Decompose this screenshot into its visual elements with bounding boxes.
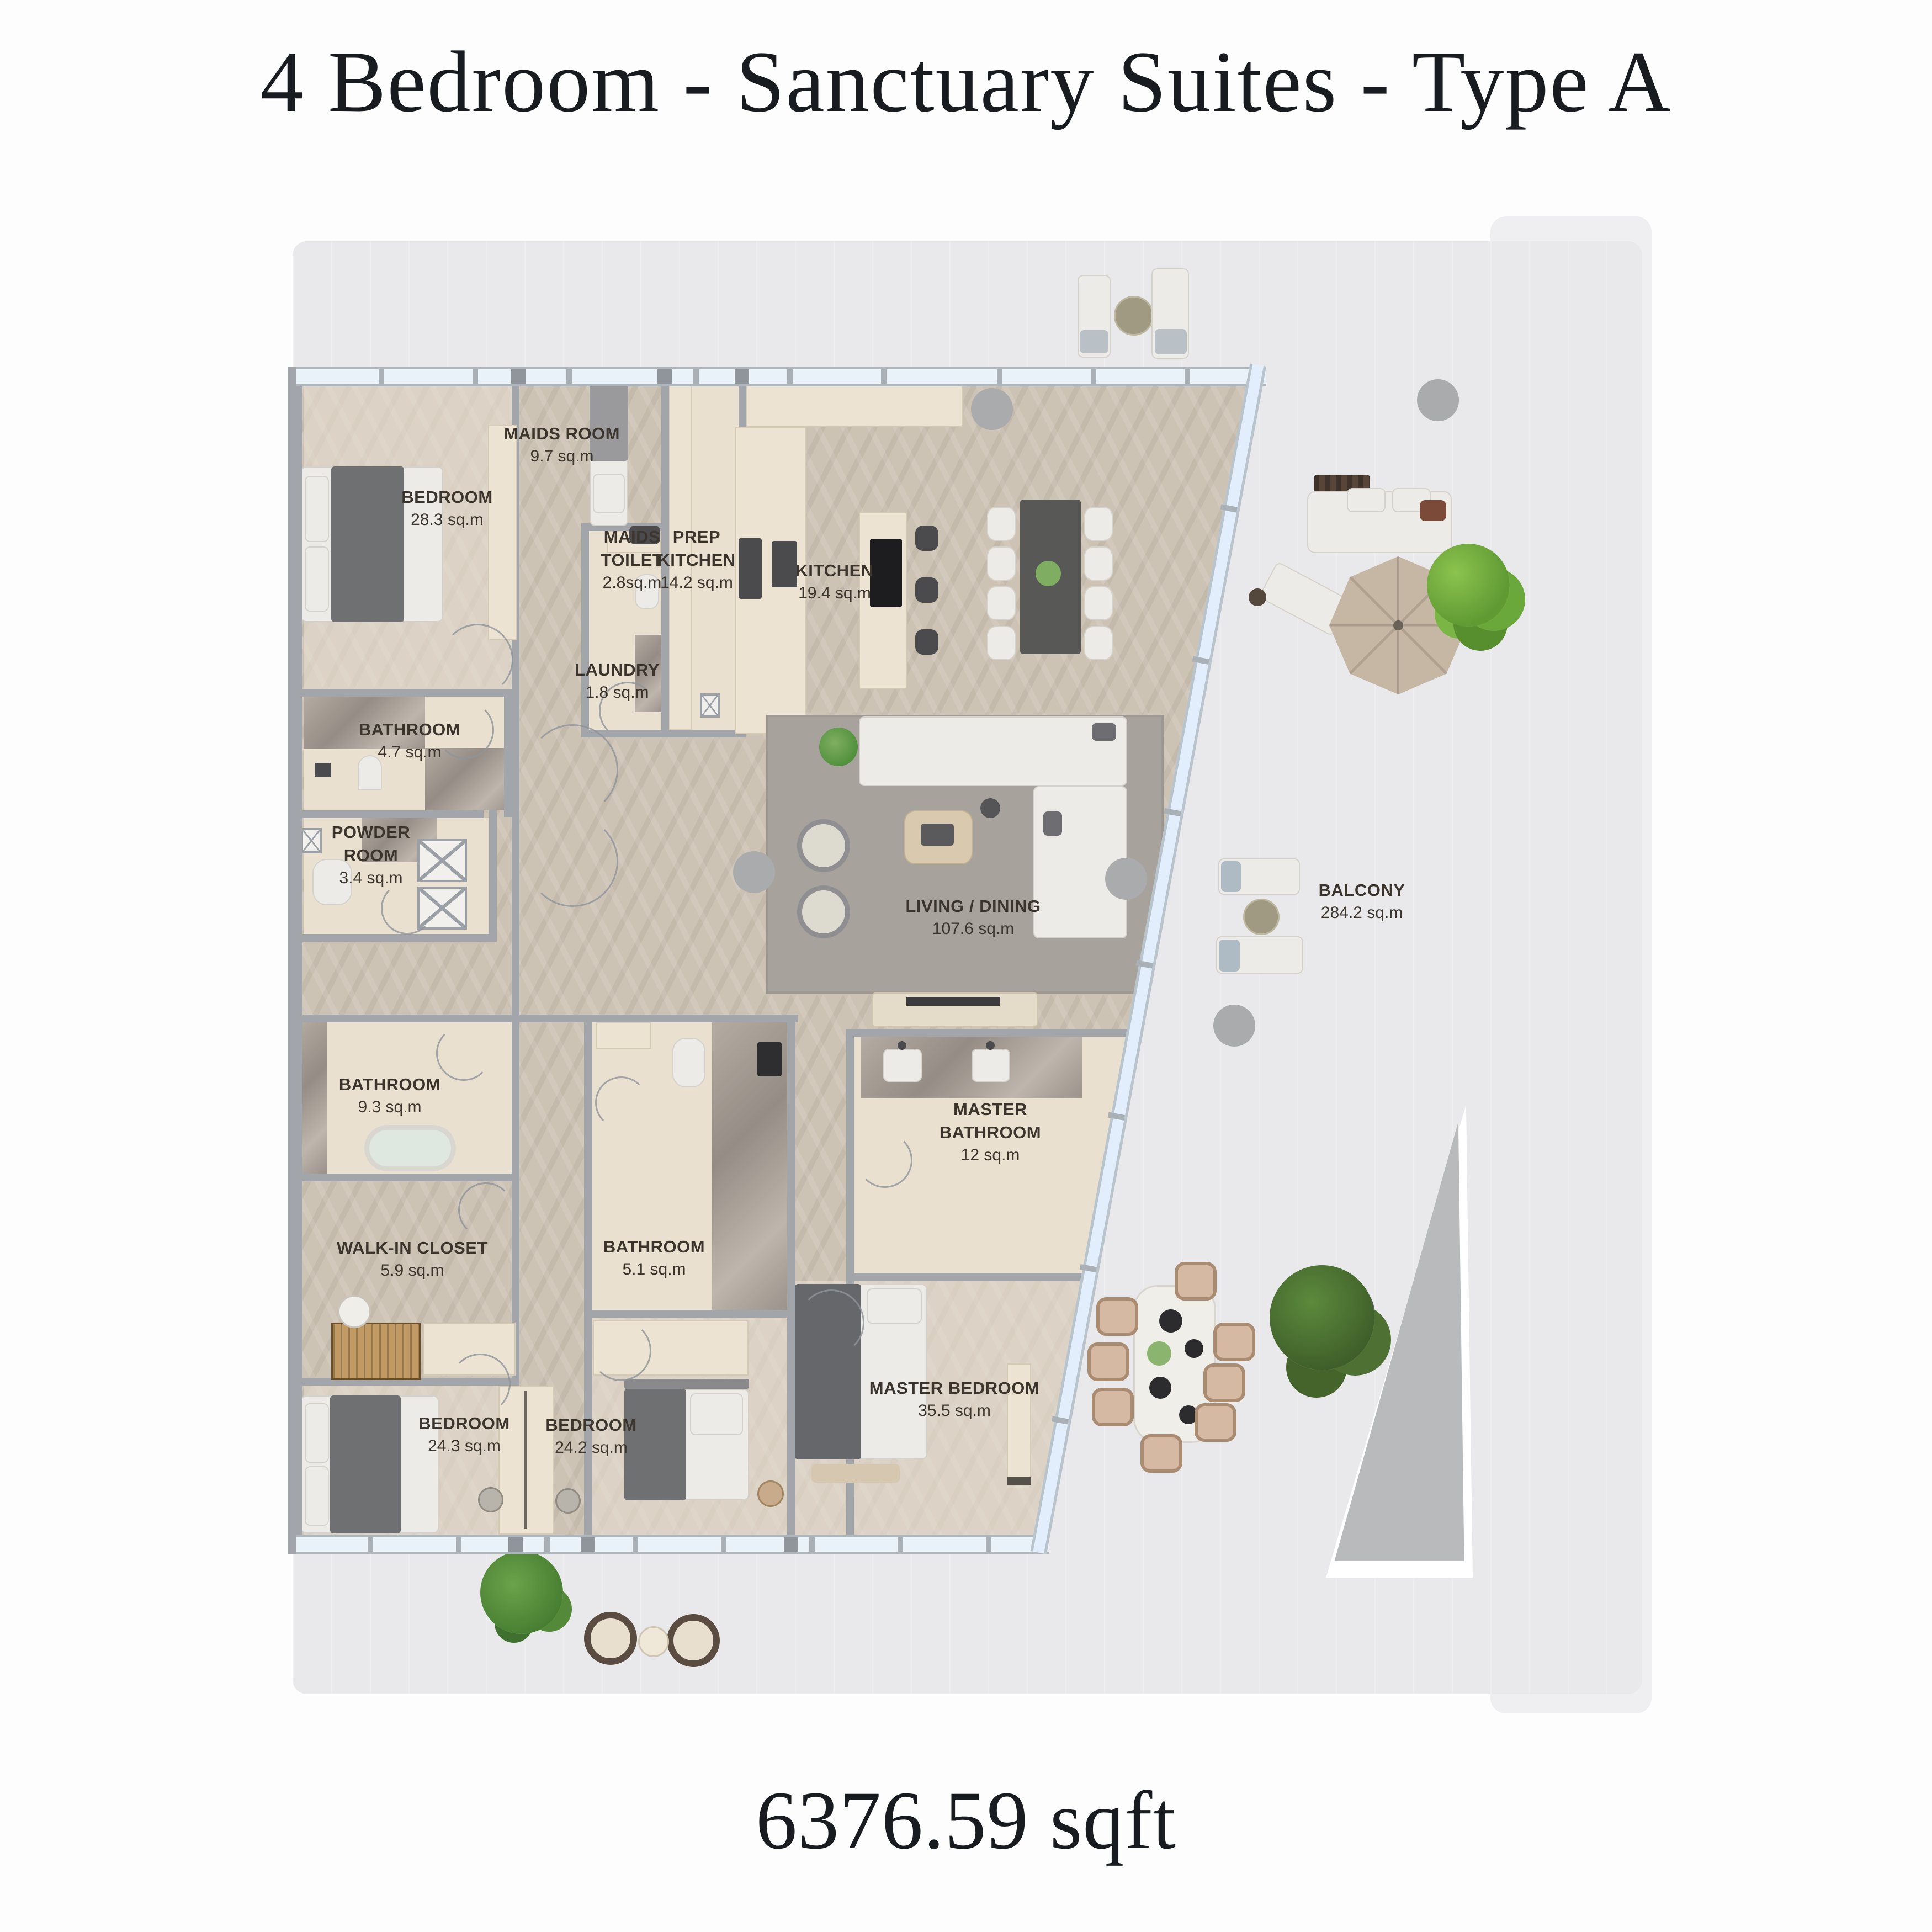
window-mullion — [881, 369, 887, 384]
table-tray-icon — [921, 824, 954, 846]
wall-segment — [584, 1022, 592, 1554]
window-mullion — [368, 1537, 373, 1552]
bar-stool-icon — [915, 629, 938, 655]
lounger-pillow-icon — [1080, 330, 1108, 353]
room-label-bathroom-9-3: BATHROOM9.3 sq.m — [279, 1073, 500, 1118]
wall-lamp-icon — [315, 763, 331, 777]
door-arc — [591, 1320, 651, 1381]
pillow-icon — [305, 1403, 329, 1463]
pillow-icon — [305, 476, 329, 542]
floor-plan-canvas: 4 Bedroom - Sanctuary Suites - Type A — [0, 0, 1932, 1932]
dining-chair-icon — [1087, 1342, 1129, 1381]
room-label-kitchen: KITCHEN19.4 sq.m — [724, 559, 945, 604]
dining-chair-icon — [987, 546, 1016, 581]
wall-segment — [581, 730, 746, 737]
window-mullion — [473, 369, 478, 384]
pouf-icon — [338, 1295, 371, 1328]
lounger-pillow-icon — [1219, 940, 1240, 972]
table-bowl-icon — [1159, 1309, 1182, 1333]
sofa-pillow-icon — [1092, 723, 1116, 741]
small-table-icon — [638, 1626, 669, 1657]
headboard-icon — [624, 1379, 749, 1389]
bed-bench-icon — [811, 1464, 900, 1483]
room-label-balcony: BALCONY284.2 sq.m — [1251, 879, 1472, 924]
wall-segment — [787, 1022, 795, 1554]
pillow-icon — [593, 474, 625, 513]
window-mullion — [1164, 808, 1181, 816]
plant-icon — [819, 728, 858, 766]
lounge-chair-icon — [584, 1612, 637, 1665]
table-bowl-icon — [1185, 1339, 1203, 1358]
page-title: 4 Bedroom - Sanctuary Suites - Type A — [0, 32, 1932, 132]
column-marker — [1105, 858, 1147, 900]
pillow-icon — [305, 1466, 329, 1526]
dining-chair-icon — [1084, 507, 1113, 541]
room-label-bathroom-4-7: BATHROOM4.7 sq.m — [299, 718, 520, 763]
vanity-icon — [596, 1022, 651, 1049]
wall-chunk — [581, 1537, 595, 1552]
dining-chair-icon — [1084, 626, 1113, 660]
window-mullion — [1108, 1112, 1125, 1121]
wall-segment — [592, 1310, 787, 1318]
green-bush-icon — [1270, 1265, 1374, 1370]
door-arc — [381, 882, 433, 935]
wall-chunk — [784, 1537, 798, 1552]
pillow-icon — [867, 1288, 922, 1324]
dining-chair-icon — [1084, 546, 1113, 581]
table-plant-icon — [1036, 561, 1061, 586]
tap-icon — [898, 1041, 906, 1050]
tap-icon — [986, 1041, 995, 1050]
wall-segment — [296, 1015, 798, 1022]
door-arc — [527, 724, 618, 815]
window-mullion — [986, 1537, 991, 1552]
window-mullion — [1091, 369, 1096, 384]
window-mullion — [379, 369, 384, 384]
column-marker — [733, 851, 775, 893]
dining-chair-icon — [987, 586, 1016, 620]
room-label-living-dining: LIVING / DINING107.6 sq.m — [863, 895, 1084, 940]
tv-icon — [906, 997, 1000, 1006]
table-plant-icon — [1147, 1341, 1171, 1366]
dining-chair-icon — [1092, 1388, 1134, 1426]
window-mullion — [898, 1537, 903, 1552]
small-table-icon — [1249, 588, 1266, 606]
sink-icon — [972, 1049, 1010, 1082]
wall-segment — [489, 810, 497, 942]
door-arc — [436, 1026, 491, 1081]
wall-segment — [296, 934, 497, 942]
door-arc — [595, 1076, 647, 1129]
column-marker — [1417, 379, 1459, 421]
wall-chunk — [657, 369, 672, 384]
shower-icon — [757, 1042, 782, 1076]
window-mullion — [809, 1537, 815, 1552]
pillow-icon — [305, 546, 329, 612]
window-mullion — [721, 1537, 726, 1552]
dining-chair-icon — [987, 507, 1016, 541]
dining-chair-icon — [1195, 1403, 1236, 1442]
lounger-pillow-icon — [1155, 329, 1187, 354]
room-label-bathroom-5-1: BATHROOM5.1 sq.m — [544, 1235, 765, 1281]
brown-pillow-icon — [1420, 500, 1446, 521]
sofa-pillow-icon — [1043, 811, 1062, 836]
exterior-wall — [288, 367, 302, 1554]
wall-segment — [296, 810, 484, 818]
dining-chair-icon — [1096, 1297, 1138, 1336]
total-area-text: 6376.59 sqft — [0, 1773, 1932, 1868]
pouf-icon — [555, 1488, 581, 1514]
column-marker — [971, 388, 1013, 430]
bathtub-icon — [364, 1125, 456, 1171]
closet-cabinet-icon — [331, 1323, 421, 1380]
wall-chunk — [508, 1537, 523, 1552]
window-mullion — [1185, 369, 1190, 384]
room-label-master-bedroom: MASTER BEDROOM35.5 sq.m — [844, 1377, 1065, 1422]
dining-chair-icon — [1203, 1363, 1245, 1402]
wall-segment — [850, 1029, 1151, 1037]
door-arc — [450, 1354, 511, 1414]
door-arc — [442, 624, 513, 696]
pouf-icon — [478, 1487, 503, 1512]
window-mullion — [566, 369, 572, 384]
window-mullion — [787, 369, 793, 384]
side-table-icon — [980, 798, 1000, 818]
dining-chair-icon — [1175, 1262, 1217, 1301]
window-mullion — [1220, 504, 1237, 512]
dining-chair-icon — [1140, 1434, 1182, 1473]
pouf-icon — [757, 1480, 784, 1507]
room-label-bedroom-1: BEDROOM28.3 sq.m — [337, 486, 558, 531]
window-mullion — [1136, 960, 1153, 968]
green-bush-icon — [1427, 544, 1510, 627]
bar-stool-icon — [915, 526, 938, 551]
wall-chunk — [511, 369, 526, 384]
sofa-icon — [859, 716, 1127, 786]
room-label-maids-room: MAIDS ROOM9.7 sq.m — [452, 422, 672, 468]
lounger-pillow-icon — [1221, 861, 1241, 892]
umbrella-pole-icon — [1393, 620, 1403, 630]
dining-chair-icon — [1213, 1323, 1255, 1361]
room-label-bedroom-24-2: BEDROOM24.2 sq.m — [481, 1414, 702, 1459]
armchair-icon — [797, 819, 850, 872]
wall-chunk — [735, 369, 749, 384]
sink-icon — [883, 1049, 922, 1082]
window-mullion — [544, 1537, 550, 1552]
column-marker — [1213, 1005, 1255, 1047]
palm-plant-icon — [480, 1551, 563, 1634]
door-arc — [458, 1182, 513, 1238]
window-mullion — [693, 369, 699, 384]
armchair-icon — [797, 885, 850, 938]
round-side-table-icon — [1114, 296, 1154, 336]
toilet-icon — [672, 1038, 705, 1087]
wall-segment — [296, 1174, 519, 1181]
wardrobe-base-icon — [1007, 1477, 1031, 1485]
window-mullion — [456, 1537, 461, 1552]
window-wall — [296, 367, 1266, 386]
window-mullion — [633, 1537, 638, 1552]
window-mullion — [997, 369, 1002, 384]
room-label-walk-in-closet: WALK-IN CLOSET5.9 sq.m — [302, 1236, 523, 1282]
window-mullion — [1192, 656, 1209, 665]
window-mullion — [1080, 1264, 1097, 1272]
lounge-chair-icon — [667, 1614, 720, 1667]
window-wall — [296, 1535, 1049, 1554]
room-label-master-bathroom: MASTER BATHROOM12 sq.m — [880, 1098, 1101, 1166]
sofa-cushion-icon — [1347, 488, 1386, 512]
dining-chair-icon — [1084, 586, 1113, 620]
room-label-powder-room: POWDER ROOM3.4 sq.m — [261, 821, 481, 889]
dining-chair-icon — [987, 626, 1016, 660]
room-label-laundry: LAUNDRY1.8 sq.m — [507, 659, 728, 704]
table-bowl-icon — [1149, 1377, 1171, 1399]
door-arc — [527, 816, 618, 907]
door-arc — [798, 1289, 864, 1356]
